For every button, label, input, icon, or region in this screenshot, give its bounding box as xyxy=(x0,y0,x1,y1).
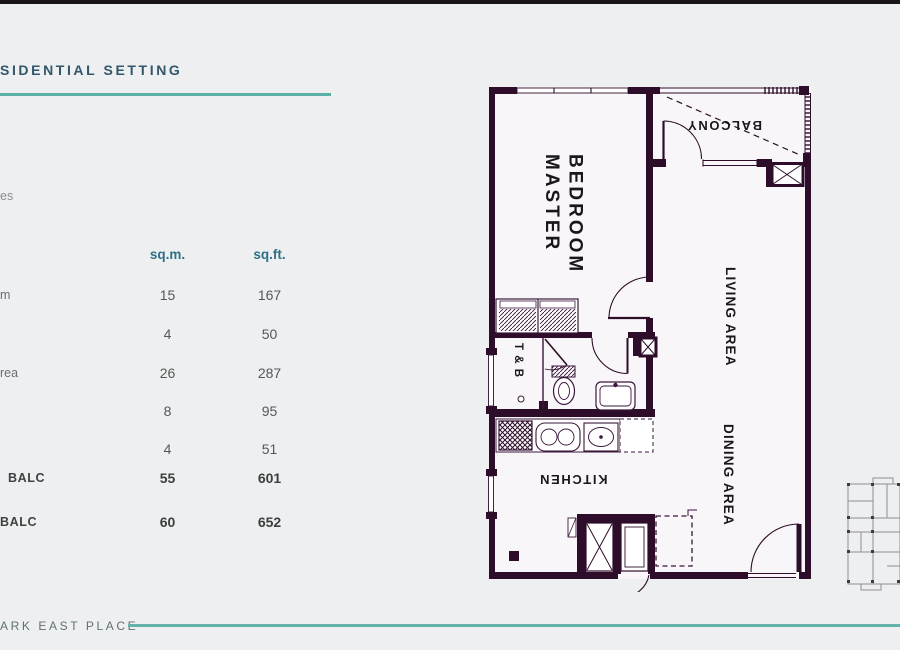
room-label-dining-area: DINING AREA xyxy=(721,424,736,550)
clipped-side-text: es xyxy=(0,189,13,203)
table-row: 8 95 xyxy=(0,403,320,419)
footer-brand-text: ARK EAST PLACE xyxy=(0,619,138,633)
floorplan-drawing xyxy=(478,82,823,592)
room-label-balcony: BALCONY xyxy=(688,118,762,133)
sqft-value: 95 xyxy=(232,403,307,419)
room-label-living-area: LIVING AREA xyxy=(723,267,738,393)
duct-box xyxy=(640,338,656,356)
room-label-toilet-bath: T & B xyxy=(512,343,524,405)
table-row-total: BALC 60 652 xyxy=(0,514,320,530)
sqm-value: 4 xyxy=(130,441,205,457)
row-label: BALC xyxy=(0,515,37,529)
table-row: rea 26 287 xyxy=(0,365,320,381)
footer-rule xyxy=(128,624,900,627)
stove xyxy=(499,421,532,450)
column-header-sqm: sq.m. xyxy=(130,247,205,262)
table-row-total: BALC 55 601 xyxy=(0,470,320,486)
linen-closet xyxy=(586,523,613,571)
room-label-kitchen: KITCHEN xyxy=(535,472,611,487)
column-header-sqft: sq.ft. xyxy=(232,247,307,262)
row-label: rea xyxy=(0,366,18,380)
keyplan-thumbnail xyxy=(843,476,900,594)
table-row: 4 50 xyxy=(0,326,320,342)
sqm-value: 55 xyxy=(130,470,205,486)
sqft-value: 652 xyxy=(232,514,307,530)
slide: SIDENTIAL SETTING es sq.m. sq.ft. m 15 1… xyxy=(0,0,900,650)
overhead-cabinet-dashed xyxy=(620,419,653,452)
utility-closet xyxy=(621,523,648,571)
sqm-value: 4 xyxy=(130,326,205,342)
counter-end-cabinet xyxy=(568,518,576,537)
room-label-master-bedroom: MASTER BEDROOM xyxy=(539,154,587,314)
sqft-value: 601 xyxy=(232,470,307,486)
sqft-value: 50 xyxy=(232,326,307,342)
top-letterbox-bar xyxy=(0,0,900,4)
table-row: m 15 167 xyxy=(0,287,320,303)
kitchen-counter xyxy=(496,419,653,452)
table-row: 4 51 xyxy=(0,441,320,457)
title-underline xyxy=(0,93,331,96)
sqft-value: 167 xyxy=(232,287,307,303)
lavatory-sink xyxy=(596,382,635,410)
ac-ledge-box xyxy=(772,164,803,186)
sqm-value: 60 xyxy=(130,514,205,530)
page-title: SIDENTIAL SETTING xyxy=(0,62,182,78)
row-label: m xyxy=(0,288,10,302)
sqft-value: 51 xyxy=(232,441,307,457)
sqm-value: 8 xyxy=(130,403,205,419)
sqft-value: 287 xyxy=(232,365,307,381)
row-label: BALC xyxy=(8,471,45,485)
sqm-value: 26 xyxy=(130,365,205,381)
sqm-value: 15 xyxy=(130,287,205,303)
toilet xyxy=(552,366,575,405)
